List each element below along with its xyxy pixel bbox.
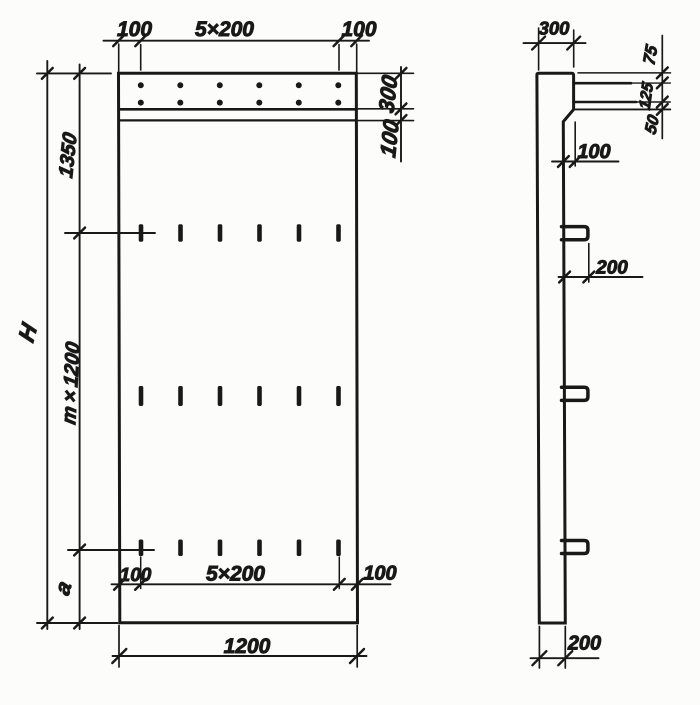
svg-text:100: 100 <box>120 565 152 586</box>
svg-text:5×200: 5×200 <box>195 18 254 41</box>
svg-text:200: 200 <box>567 633 601 655</box>
svg-text:100: 100 <box>363 563 396 585</box>
svg-text:100: 100 <box>117 18 152 41</box>
svg-text:1350: 1350 <box>55 130 81 180</box>
svg-text:5×200: 5×200 <box>206 563 265 586</box>
svg-text:100: 100 <box>341 18 376 41</box>
svg-text:100: 100 <box>577 141 610 163</box>
svg-text:m × 1200: m × 1200 <box>58 340 84 426</box>
svg-text:300: 300 <box>539 18 571 39</box>
svg-text:300: 300 <box>374 72 402 115</box>
svg-text:1200: 1200 <box>224 635 271 658</box>
svg-text:200: 200 <box>595 257 628 278</box>
svg-text:100: 100 <box>375 116 403 159</box>
